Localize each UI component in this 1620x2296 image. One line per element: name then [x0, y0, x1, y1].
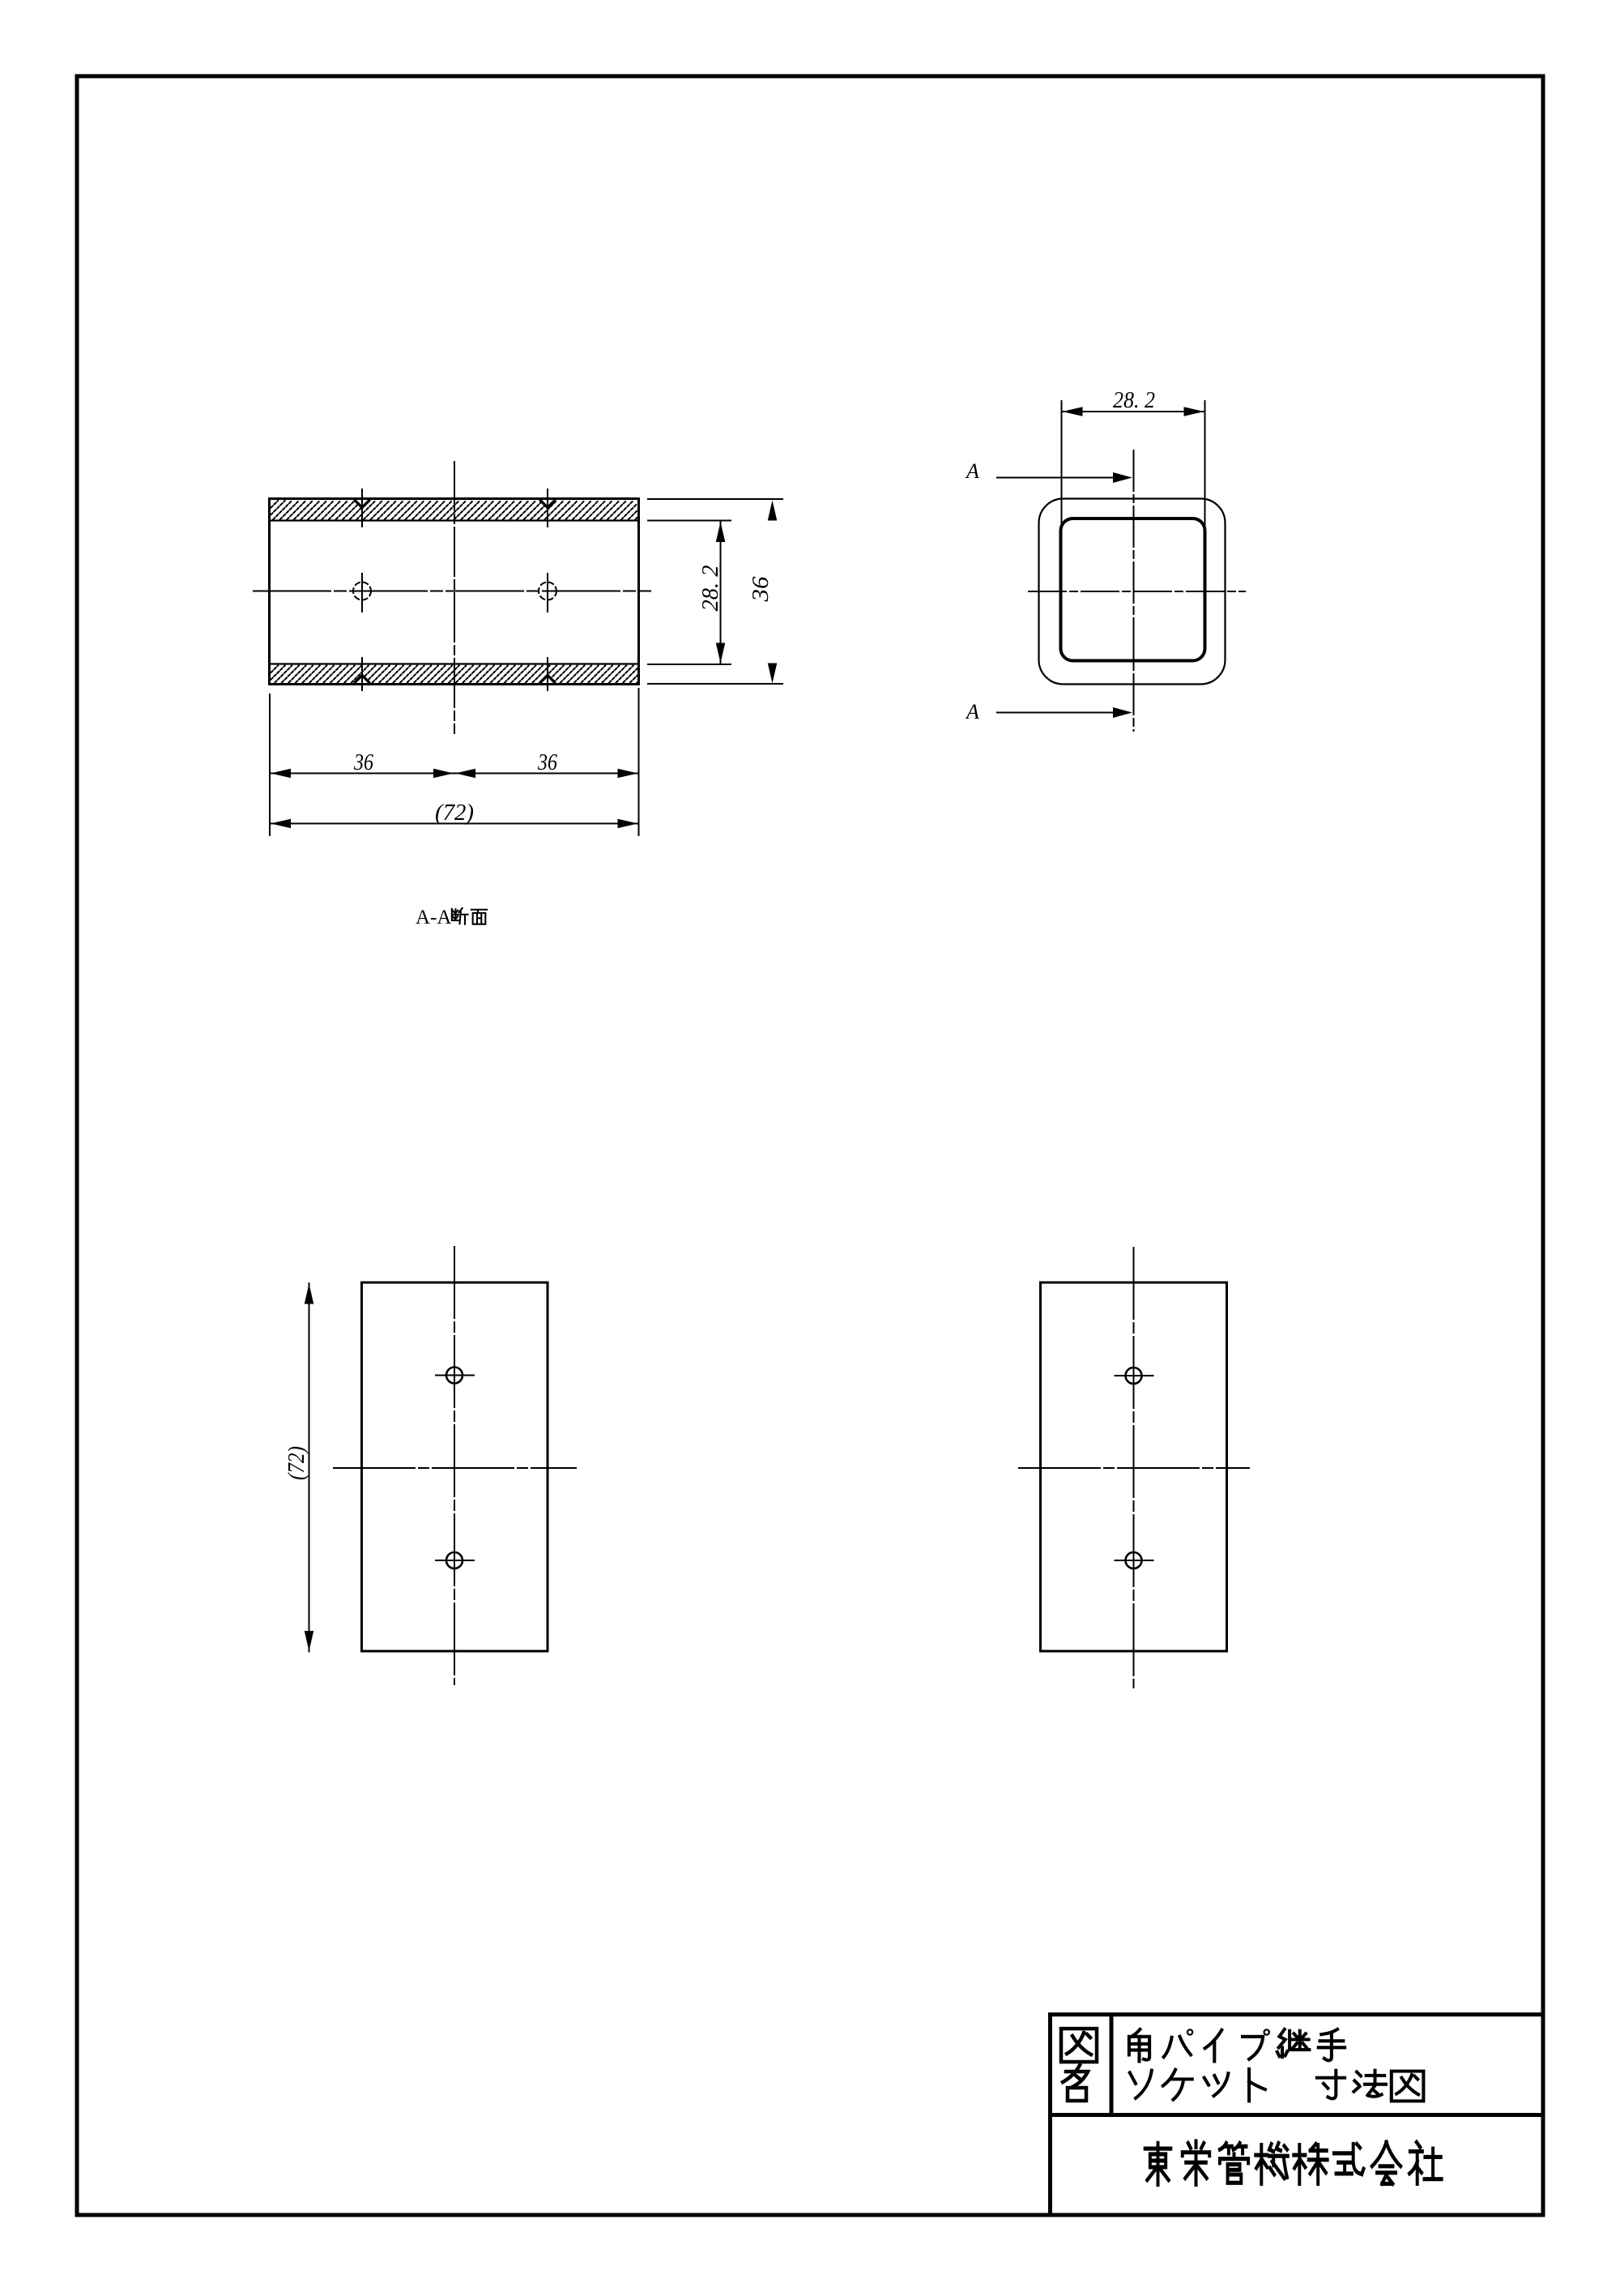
svg-text:36: 36 [748, 577, 774, 603]
svg-text:36: 36 [353, 750, 373, 775]
svg-text:36: 36 [537, 750, 557, 775]
svg-text:A: A [965, 700, 979, 723]
svg-text:(72): (72) [284, 1446, 309, 1480]
svg-text:28. 2: 28. 2 [1113, 388, 1155, 413]
svg-text:A: A [965, 459, 979, 483]
svg-text:A-A: A-A [416, 907, 451, 928]
svg-text:(72): (72) [435, 800, 474, 826]
svg-text:28. 2: 28. 2 [698, 565, 723, 612]
